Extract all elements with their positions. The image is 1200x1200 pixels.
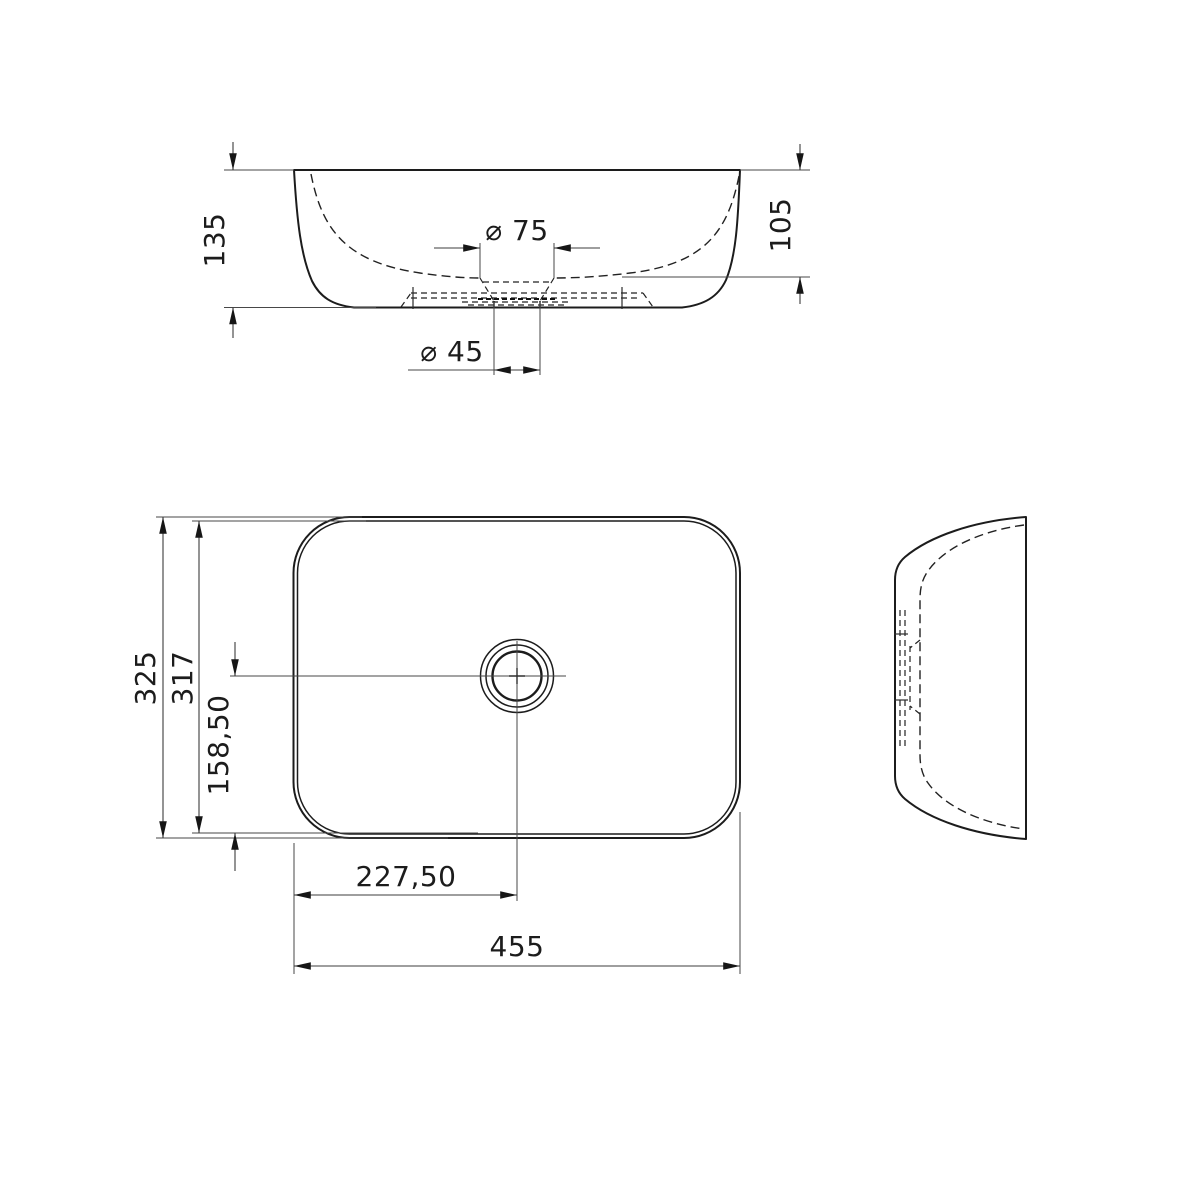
dim-label-105: 105: [764, 198, 797, 253]
side-outer-profile: [895, 517, 1026, 839]
dim-label-d75: ⌀ 75: [485, 214, 548, 247]
basin-technical-drawing: 135 105 ⌀ 75 ⌀ 45: [0, 0, 1200, 1200]
dim-label-455: 455: [490, 930, 545, 963]
front-elevation-view: 135 105 ⌀ 75 ⌀ 45: [198, 142, 810, 375]
plan-view: 325 317 158,50 227,50 455: [129, 517, 740, 974]
side-profile-view: [894, 517, 1026, 839]
dim-plan-overall-depth: 325: [129, 517, 163, 838]
dim-label-135: 135: [198, 213, 231, 268]
dim-label-317: 317: [166, 651, 199, 706]
dim-label-d45: ⌀ 45: [420, 335, 483, 368]
dim-label-227-50: 227,50: [356, 860, 457, 893]
dim-label-325: 325: [129, 651, 162, 706]
technical-drawing-page: 135 105 ⌀ 75 ⌀ 45: [0, 0, 1200, 1200]
dim-plan-drain-offset-width: 227,50: [294, 860, 517, 895]
dim-plan-base-depth: 317: [166, 521, 199, 833]
dim-label-158-50: 158,50: [202, 695, 235, 796]
dim-front-drain-diameter: ⌀ 45: [408, 302, 540, 375]
dim-plan-overall-width: 455: [294, 930, 740, 966]
